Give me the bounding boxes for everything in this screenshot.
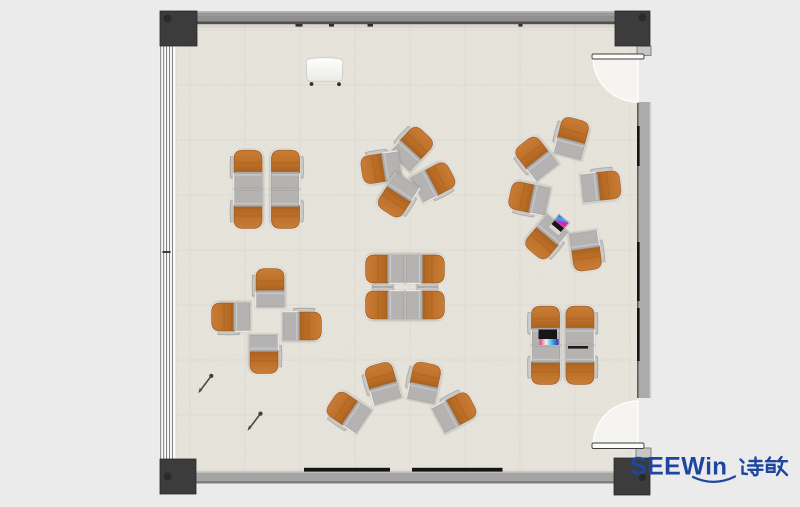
svg-text:SEEWin: SEEWin <box>630 453 727 481</box>
